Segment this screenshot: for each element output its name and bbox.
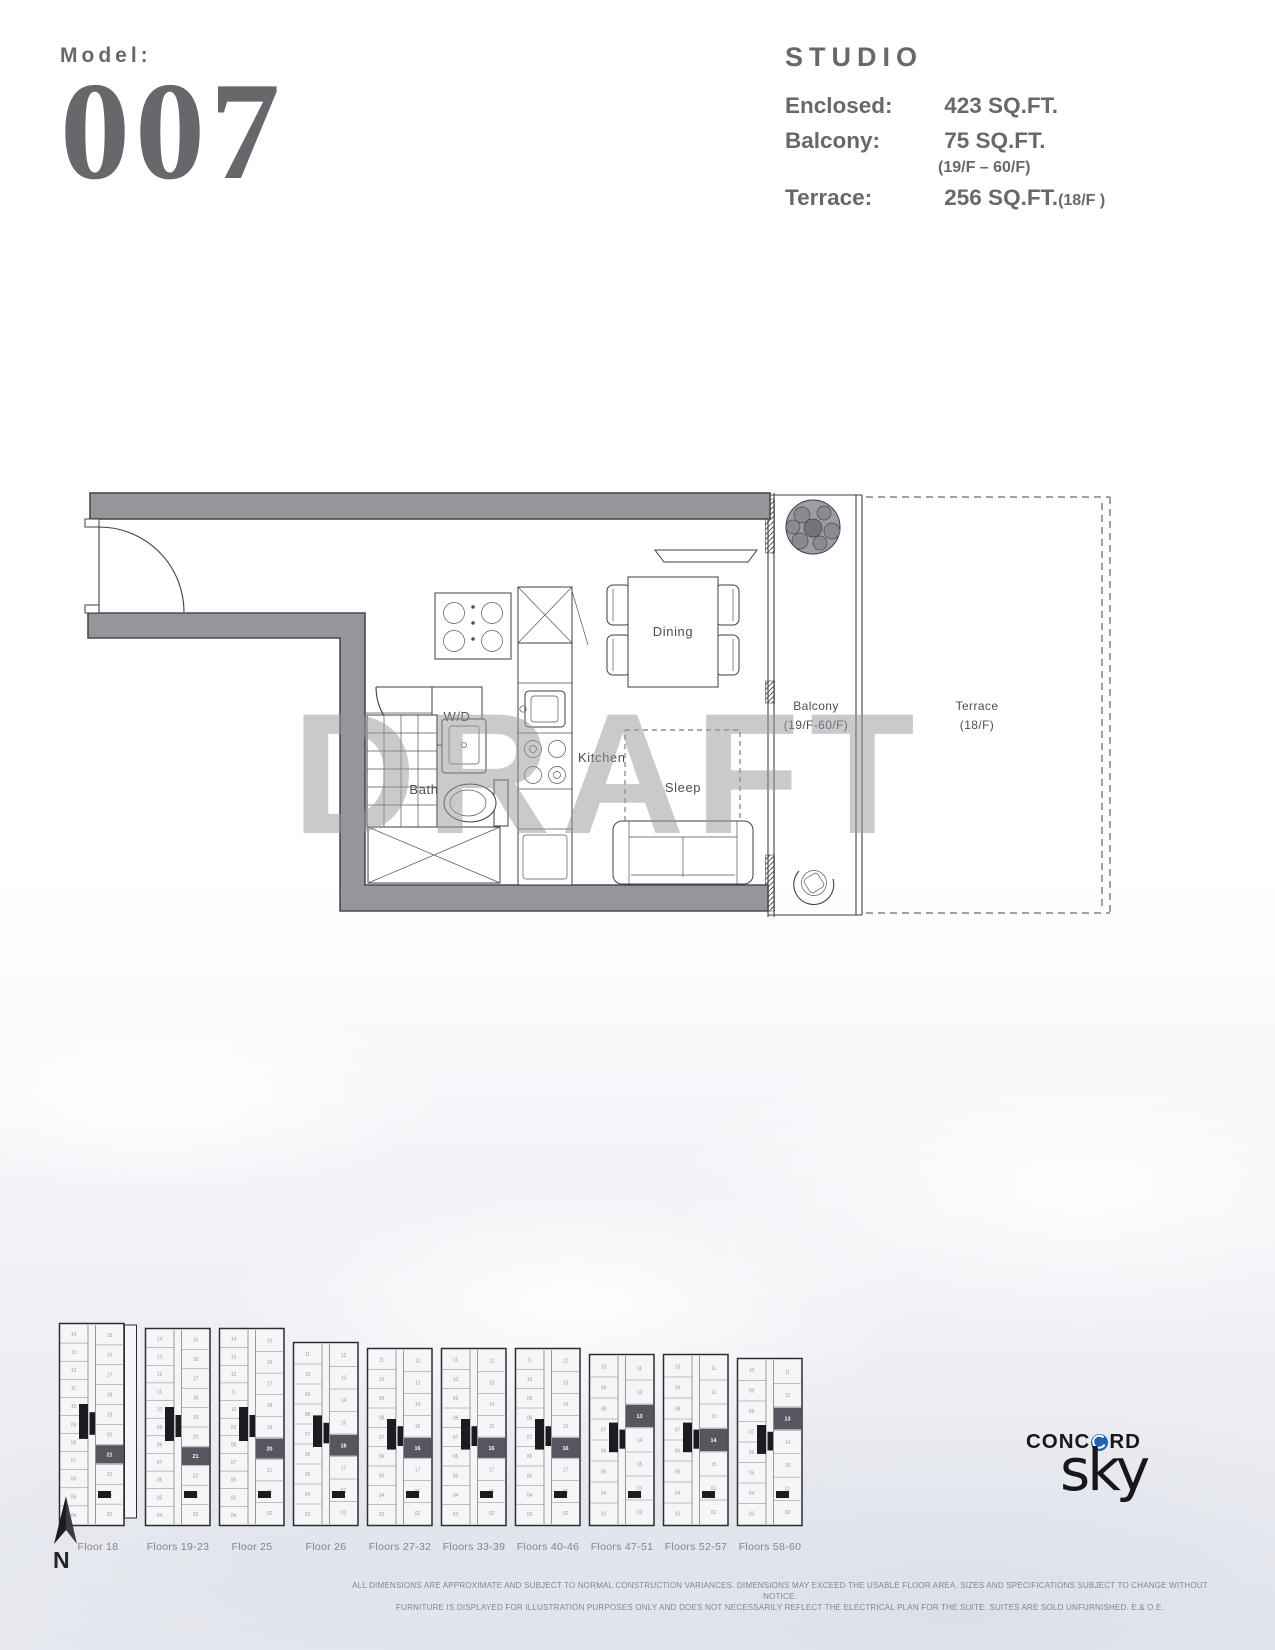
svg-text:15: 15 <box>415 1424 421 1430</box>
svg-text:10: 10 <box>305 1372 311 1378</box>
svg-text:04: 04 <box>157 1513 163 1519</box>
svg-text:15: 15 <box>341 1421 347 1427</box>
svg-text:11: 11 <box>305 1352 310 1358</box>
svg-text:17: 17 <box>267 1382 273 1388</box>
keyplan-4: 1110090807060504031213141516170102Floor … <box>292 1341 360 1553</box>
spec-row-terrace: Terrace: 256 SQ.FT.(18/F ) <box>785 185 1105 211</box>
north-arrow-icon: N <box>44 1492 86 1572</box>
keyplan-label: Floors 27-32 <box>369 1541 432 1553</box>
svg-text:08: 08 <box>71 1440 77 1446</box>
svg-text:04: 04 <box>675 1490 681 1496</box>
svg-text:21: 21 <box>193 1454 199 1460</box>
svg-text:14: 14 <box>231 1337 237 1343</box>
svg-text:19: 19 <box>107 1412 113 1418</box>
spec-label: Balcony: <box>785 128 938 154</box>
keyplan-drawing: 1110090807060504031213141516170102 <box>366 1347 434 1527</box>
svg-text:07: 07 <box>231 1460 237 1466</box>
svg-text:02: 02 <box>267 1511 273 1517</box>
svg-text:11: 11 <box>785 1370 790 1376</box>
svg-text:12: 12 <box>711 1390 717 1396</box>
svg-text:04: 04 <box>749 1491 755 1497</box>
svg-text:02: 02 <box>107 1512 113 1518</box>
bathroom <box>365 713 508 883</box>
unit-type: STUDIO <box>785 42 1105 73</box>
spec-value: 75 SQ.FT. <box>944 128 1045 153</box>
svg-text:16: 16 <box>341 1443 347 1449</box>
svg-text:12: 12 <box>341 1353 347 1359</box>
svg-text:05: 05 <box>527 1474 533 1480</box>
svg-text:06: 06 <box>305 1452 311 1458</box>
svg-text:11: 11 <box>637 1366 642 1372</box>
svg-text:01: 01 <box>637 1486 643 1492</box>
svg-text:06: 06 <box>601 1448 607 1454</box>
svg-text:22: 22 <box>107 1472 113 1478</box>
svg-text:15: 15 <box>267 1339 273 1345</box>
svg-text:22: 22 <box>193 1473 199 1479</box>
svg-text:13: 13 <box>341 1376 347 1382</box>
svg-text:17: 17 <box>415 1467 421 1473</box>
north-indicator: N <box>44 1492 86 1577</box>
svg-text:15: 15 <box>563 1424 569 1430</box>
keyplan-drawing: 1110090807060504031213141516170102 <box>292 1341 360 1527</box>
svg-text:02: 02 <box>341 1511 347 1517</box>
spec-label: Terrace: <box>785 185 938 211</box>
spec-value: 423 SQ.FT. <box>944 93 1058 118</box>
disclaimer-line-1: ALL DIMENSIONS ARE APPROXIMATE AND SUBJE… <box>350 1580 1210 1602</box>
svg-text:14: 14 <box>637 1438 643 1444</box>
keyplan-label: Floors 33-39 <box>443 1541 506 1553</box>
svg-text:17: 17 <box>193 1376 199 1382</box>
svg-text:02: 02 <box>489 1511 495 1517</box>
svg-text:06: 06 <box>231 1478 237 1484</box>
keyplan-2: 1413121110090807060504151617181920212201… <box>144 1327 212 1553</box>
keyplan-3: 1413121110090807060504151617181920210102… <box>218 1327 286 1553</box>
wd-label: W/D <box>443 709 470 724</box>
keyplan-label: Floor 26 <box>306 1541 347 1553</box>
svg-text:03: 03 <box>675 1511 681 1517</box>
dining-label: Dining <box>653 624 693 639</box>
svg-text:18: 18 <box>107 1392 113 1398</box>
svg-text:14: 14 <box>71 1332 77 1338</box>
svg-text:06: 06 <box>675 1448 681 1454</box>
svg-text:12: 12 <box>71 1368 77 1374</box>
svg-text:11: 11 <box>231 1390 236 1396</box>
keyplan-drawing: 100908070605040311121314150102 <box>588 1353 656 1527</box>
svg-text:08: 08 <box>453 1416 459 1422</box>
svg-text:09: 09 <box>379 1396 385 1402</box>
svg-text:14: 14 <box>157 1337 163 1343</box>
svg-text:05: 05 <box>749 1471 755 1477</box>
svg-text:07: 07 <box>305 1432 311 1438</box>
svg-text:15: 15 <box>711 1462 717 1468</box>
svg-text:16: 16 <box>193 1357 199 1363</box>
svg-text:10: 10 <box>379 1377 385 1383</box>
svg-text:05: 05 <box>231 1495 237 1501</box>
svg-text:09: 09 <box>231 1425 237 1431</box>
svg-text:09: 09 <box>157 1425 163 1431</box>
svg-text:06: 06 <box>157 1478 163 1484</box>
svg-text:08: 08 <box>675 1406 681 1412</box>
keyplan-drawing: 1413121110090807060504151617181920210102 <box>218 1327 286 1527</box>
svg-text:06: 06 <box>527 1454 533 1460</box>
svg-text:12: 12 <box>157 1372 163 1378</box>
svg-text:10: 10 <box>749 1368 755 1374</box>
svg-text:08: 08 <box>527 1416 533 1422</box>
floorplan-page: Model: 007 STUDIO Enclosed: 423 SQ.FT. B… <box>0 0 1275 1650</box>
svg-text:13: 13 <box>489 1380 495 1386</box>
svg-text:07: 07 <box>379 1435 385 1441</box>
svg-text:06: 06 <box>453 1454 459 1460</box>
svg-text:02: 02 <box>785 1510 791 1516</box>
sleep-label: Sleep <box>665 780 701 795</box>
svg-text:03: 03 <box>527 1512 533 1518</box>
svg-text:21: 21 <box>267 1468 273 1474</box>
svg-text:13: 13 <box>711 1414 717 1420</box>
svg-text:09: 09 <box>453 1396 459 1402</box>
svg-text:14: 14 <box>785 1440 791 1446</box>
stove-icon <box>435 593 511 659</box>
keyplan-drawing: 100908070605040311121314150102 <box>662 1353 730 1527</box>
sleep-area <box>613 730 753 884</box>
svg-text:12: 12 <box>231 1372 237 1378</box>
svg-text:09: 09 <box>601 1385 607 1391</box>
svg-text:07: 07 <box>675 1427 681 1433</box>
balcony-chair-icon <box>794 871 834 905</box>
balcony-floors-label: (19/F-60/F) <box>784 718 848 732</box>
svg-text:05: 05 <box>453 1474 459 1480</box>
svg-text:09: 09 <box>749 1389 755 1395</box>
spec-label: Enclosed: <box>785 93 938 119</box>
model-block: Model: 007 <box>60 44 285 202</box>
svg-text:12: 12 <box>563 1359 569 1365</box>
keyplan-label: Floors 47-51 <box>591 1541 654 1553</box>
svg-text:03: 03 <box>749 1512 755 1518</box>
svg-text:05: 05 <box>305 1472 311 1478</box>
keyplan-8: 100908070605040311121314150102Floors 47-… <box>588 1353 656 1553</box>
svg-text:07: 07 <box>157 1460 163 1466</box>
svg-text:14: 14 <box>711 1438 717 1444</box>
spec-note-terrace: (18/F ) <box>1058 192 1105 209</box>
svg-text:03: 03 <box>379 1512 385 1518</box>
svg-text:06: 06 <box>749 1450 755 1456</box>
svg-text:04: 04 <box>527 1493 533 1499</box>
svg-text:13: 13 <box>415 1380 421 1386</box>
svg-text:17: 17 <box>489 1467 495 1473</box>
svg-text:03: 03 <box>601 1511 607 1517</box>
spec-row-enclosed: Enclosed: 423 SQ.FT. <box>785 93 1105 119</box>
svg-text:04: 04 <box>601 1490 607 1496</box>
svg-text:05: 05 <box>601 1469 607 1475</box>
svg-text:10: 10 <box>601 1364 607 1370</box>
svg-text:14: 14 <box>415 1402 421 1408</box>
svg-text:04: 04 <box>379 1493 385 1499</box>
svg-text:20: 20 <box>193 1435 199 1441</box>
svg-text:17: 17 <box>563 1467 569 1473</box>
svg-text:07: 07 <box>601 1427 607 1433</box>
keyplan-label: Floor 25 <box>232 1541 273 1553</box>
svg-text:10: 10 <box>71 1404 77 1410</box>
svg-text:02: 02 <box>563 1511 569 1517</box>
svg-text:02: 02 <box>193 1512 199 1518</box>
kitchen-counter <box>518 643 572 885</box>
svg-text:09: 09 <box>527 1396 533 1402</box>
svg-text:12: 12 <box>637 1390 643 1396</box>
entry-door <box>85 519 184 613</box>
svg-text:20: 20 <box>107 1432 113 1438</box>
svg-text:20: 20 <box>267 1447 273 1453</box>
svg-text:01: 01 <box>711 1486 717 1492</box>
floorplan-svg: Dining Kitchen Bath W/D Sleep Balcony (1… <box>80 485 1120 945</box>
svg-text:07: 07 <box>749 1430 755 1436</box>
svg-text:02: 02 <box>711 1510 717 1516</box>
svg-text:10: 10 <box>527 1377 533 1383</box>
svg-text:08: 08 <box>157 1442 163 1448</box>
keyplan-7: 1110090807060504031213141516170102Floors… <box>514 1347 582 1553</box>
disclaimer: ALL DIMENSIONS ARE APPROXIMATE AND SUBJE… <box>350 1580 1210 1613</box>
keyplan-drawing: 1413121110090807060504151617181920212201… <box>144 1327 212 1527</box>
svg-text:09: 09 <box>71 1422 77 1428</box>
svg-text:16: 16 <box>563 1446 569 1452</box>
svg-text:05: 05 <box>675 1469 681 1475</box>
svg-text:12: 12 <box>785 1393 791 1399</box>
svg-text:13: 13 <box>157 1354 163 1360</box>
svg-text:15: 15 <box>785 1463 791 1469</box>
svg-text:17: 17 <box>341 1466 347 1472</box>
svg-text:11: 11 <box>527 1358 532 1364</box>
svg-text:15: 15 <box>637 1462 643 1468</box>
svg-text:08: 08 <box>305 1412 311 1418</box>
svg-text:19: 19 <box>267 1425 273 1431</box>
keyplan-drawing: 1110090807060504031213141516170102 <box>514 1347 582 1527</box>
svg-text:16: 16 <box>489 1446 495 1452</box>
svg-text:19: 19 <box>193 1415 199 1421</box>
svg-text:08: 08 <box>749 1409 755 1415</box>
svg-text:15: 15 <box>107 1333 113 1339</box>
svg-text:11: 11 <box>711 1366 716 1372</box>
keyplan-6: 1110090807060504031213141516170102Floors… <box>440 1347 508 1553</box>
wall-shelf <box>655 550 757 562</box>
svg-text:10: 10 <box>453 1377 459 1383</box>
svg-text:03: 03 <box>453 1512 459 1518</box>
svg-text:08: 08 <box>231 1442 237 1448</box>
svg-text:16: 16 <box>415 1446 421 1452</box>
keyplans: 1413121110090807060504151617181920212201… <box>58 1322 804 1553</box>
disclaimer-line-2: FURNITURE IS DISPLAYED FOR ILLUSTRATION … <box>350 1602 1210 1613</box>
svg-text:18: 18 <box>267 1403 273 1409</box>
keyplan-label: Floors 19-23 <box>147 1541 210 1553</box>
keyplan-5: 1110090807060504031213141516170102Floors… <box>366 1347 434 1553</box>
svg-text:10: 10 <box>675 1364 681 1370</box>
keyplan-drawing: 100908070605040311121314150102 <box>736 1357 804 1527</box>
svg-text:02: 02 <box>415 1511 421 1517</box>
svg-text:14: 14 <box>563 1402 569 1408</box>
svg-text:14: 14 <box>489 1402 495 1408</box>
svg-text:15: 15 <box>193 1338 199 1344</box>
plant-icon <box>786 500 840 554</box>
svg-text:09: 09 <box>305 1392 311 1398</box>
svg-text:13: 13 <box>231 1354 237 1360</box>
svg-text:13: 13 <box>785 1417 791 1423</box>
floorplan: Dining Kitchen Bath W/D Sleep Balcony (1… <box>80 485 1120 945</box>
svg-text:07: 07 <box>527 1435 533 1441</box>
sky-wordmark: sky <box>1060 1446 1147 1495</box>
fridge-icon <box>518 587 588 645</box>
svg-text:06: 06 <box>379 1454 385 1460</box>
model-number: 007 <box>60 62 285 202</box>
svg-text:02: 02 <box>637 1510 643 1516</box>
svg-text:07: 07 <box>71 1459 77 1465</box>
svg-text:08: 08 <box>601 1406 607 1412</box>
svg-text:13: 13 <box>563 1380 569 1386</box>
spec-note-balcony: (19/F – 60/F) <box>938 159 1105 177</box>
keyplan-10: 100908070605040311121314150102Floors 58-… <box>736 1357 804 1553</box>
keyplan-9: 100908070605040311121314150102Floors 52-… <box>662 1353 730 1553</box>
svg-text:03: 03 <box>305 1512 311 1518</box>
svg-text:15: 15 <box>489 1424 495 1430</box>
svg-text:17: 17 <box>107 1373 113 1379</box>
svg-text:14: 14 <box>341 1398 347 1404</box>
svg-text:12: 12 <box>415 1359 421 1365</box>
svg-text:16: 16 <box>107 1353 113 1359</box>
spec-row-balcony: Balcony: 75 SQ.FT. <box>785 128 1105 154</box>
svg-text:21: 21 <box>107 1452 113 1458</box>
svg-text:13: 13 <box>71 1350 77 1356</box>
svg-text:04: 04 <box>453 1493 459 1499</box>
svg-text:13: 13 <box>637 1414 643 1420</box>
terrace-label: Terrace <box>956 699 999 713</box>
svg-text:11: 11 <box>157 1390 162 1396</box>
bath-label: Bath <box>409 782 438 797</box>
svg-text:09: 09 <box>675 1385 681 1391</box>
svg-text:04: 04 <box>231 1513 237 1519</box>
svg-text:18: 18 <box>193 1396 199 1402</box>
unit-info-block: STUDIO Enclosed: 423 SQ.FT. Balcony: 75 … <box>785 42 1105 220</box>
keyplan-label: Floors 52-57 <box>665 1541 728 1553</box>
svg-text:05: 05 <box>157 1495 163 1501</box>
svg-text:16: 16 <box>267 1360 273 1366</box>
svg-text:06: 06 <box>71 1477 77 1483</box>
svg-text:07: 07 <box>453 1435 459 1441</box>
terrace-floor-label: (18/F) <box>960 718 994 732</box>
keyplan-label: Floors 40-46 <box>517 1541 580 1553</box>
svg-text:11: 11 <box>453 1358 458 1364</box>
kitchen-label: Kitchen <box>578 750 626 765</box>
balcony-label: Balcony <box>793 699 839 713</box>
svg-text:12: 12 <box>489 1359 495 1365</box>
svg-text:10: 10 <box>231 1407 237 1413</box>
spec-value: 256 SQ.FT. <box>944 185 1058 210</box>
svg-text:11: 11 <box>379 1358 384 1364</box>
svg-text:04: 04 <box>305 1492 311 1498</box>
svg-text:08: 08 <box>379 1416 385 1422</box>
north-label: N <box>53 1547 70 1572</box>
keyplan-drawing: 1110090807060504031213141516170102 <box>440 1347 508 1527</box>
keyplan-label: Floors 58-60 <box>739 1541 802 1553</box>
svg-text:05: 05 <box>379 1474 385 1480</box>
brand-logo: CONC RD sky <box>1026 1430 1147 1495</box>
svg-text:10: 10 <box>157 1407 163 1413</box>
svg-text:11: 11 <box>71 1386 76 1392</box>
